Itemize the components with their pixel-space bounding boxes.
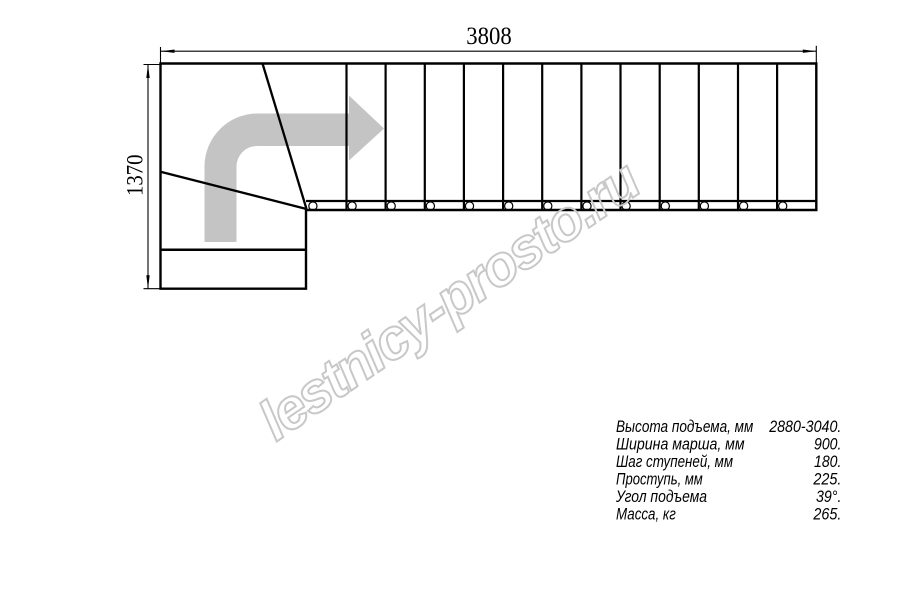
svg-text:Шаг ступеней, мм: Шаг ступеней, мм	[616, 452, 733, 471]
svg-text:Угол подъема: Угол подъема	[615, 487, 707, 506]
svg-text:Высота подъема, мм: Высота подъема, мм	[616, 417, 754, 436]
svg-text:39°.: 39°.	[816, 487, 841, 506]
svg-text:3808: 3808	[466, 23, 512, 50]
svg-text:1370: 1370	[123, 155, 149, 197]
svg-text:180.: 180.	[814, 452, 841, 471]
svg-text:Проступь, мм: Проступь, мм	[616, 469, 703, 488]
svg-text:265.: 265.	[813, 504, 842, 523]
svg-text:Ширина марша, мм: Ширина марша, мм	[616, 434, 745, 453]
svg-text:900.: 900.	[814, 434, 841, 453]
svg-text:2880-3040.: 2880-3040.	[768, 417, 841, 436]
svg-text:lestnicy-prosto.ru: lestnicy-prosto.ru	[247, 148, 651, 452]
svg-text:Масса, кг: Масса, кг	[616, 504, 676, 523]
svg-text:225.: 225.	[813, 469, 842, 488]
